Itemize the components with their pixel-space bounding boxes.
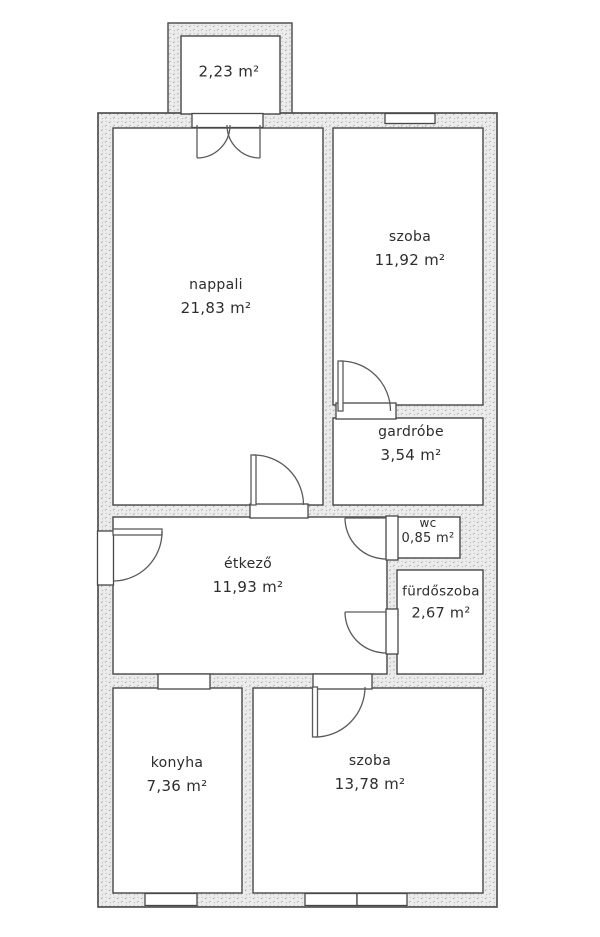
floor-plan-drawing	[0, 0, 600, 937]
window-szoba-bottom-1	[305, 894, 357, 906]
room-label-nappali: nappali 21,83 m²	[181, 278, 252, 316]
room-name: wc	[401, 517, 454, 529]
room-label-gardrobe: gardróbe 3,54 m²	[378, 425, 444, 463]
room-name: étkező	[213, 557, 284, 571]
room-name: konyha	[147, 756, 208, 770]
room-area: 11,92 m²	[375, 253, 446, 268]
floor-plan: 2,23 m² nappali 21,83 m² szoba 11,92 m² …	[0, 0, 600, 937]
room-area: 13,78 m²	[335, 777, 406, 792]
room-name: szoba	[375, 230, 446, 244]
room-label-furdoszoba: fürdőszoba 2,67 m²	[402, 586, 480, 621]
szoba-gardrobe-door-sill	[336, 403, 396, 419]
room-name: gardróbe	[378, 425, 444, 439]
room-name: fürdőszoba	[402, 586, 480, 600]
room-label-szoba-bottom: szoba 13,78 m²	[335, 754, 406, 792]
window-top	[385, 114, 435, 124]
room-area: 7,36 m²	[147, 779, 208, 794]
window-konyha	[145, 894, 197, 906]
room-name: nappali	[181, 278, 252, 292]
room-label-szoba-top: szoba 11,92 m²	[375, 230, 446, 268]
room-area: 11,93 m²	[213, 580, 284, 595]
wc-door-gap	[386, 516, 398, 560]
room-area: 2,23 m²	[199, 65, 260, 80]
room-label-wc: wc 0,85 m²	[401, 517, 454, 545]
window-szoba-bottom-2	[357, 894, 407, 906]
room-area: 21,83 m²	[181, 301, 252, 316]
konyha-door-sill	[158, 674, 210, 689]
nappali-etkezo-door-sill	[250, 504, 308, 518]
furdoszoba-door-gap	[386, 609, 398, 654]
room-name: szoba	[335, 754, 406, 768]
room-label-konyha: konyha 7,36 m²	[147, 756, 208, 794]
room-area: 0,85 m²	[401, 532, 454, 545]
room-label-etkezo: étkező 11,93 m²	[213, 557, 284, 595]
entry-door-gap	[98, 531, 114, 585]
room-label-balcony: 2,23 m²	[199, 65, 260, 80]
room-area: 3,54 m²	[378, 448, 444, 463]
room-area: 2,67 m²	[402, 606, 480, 621]
szoba-bottom-door-sill	[313, 674, 372, 689]
